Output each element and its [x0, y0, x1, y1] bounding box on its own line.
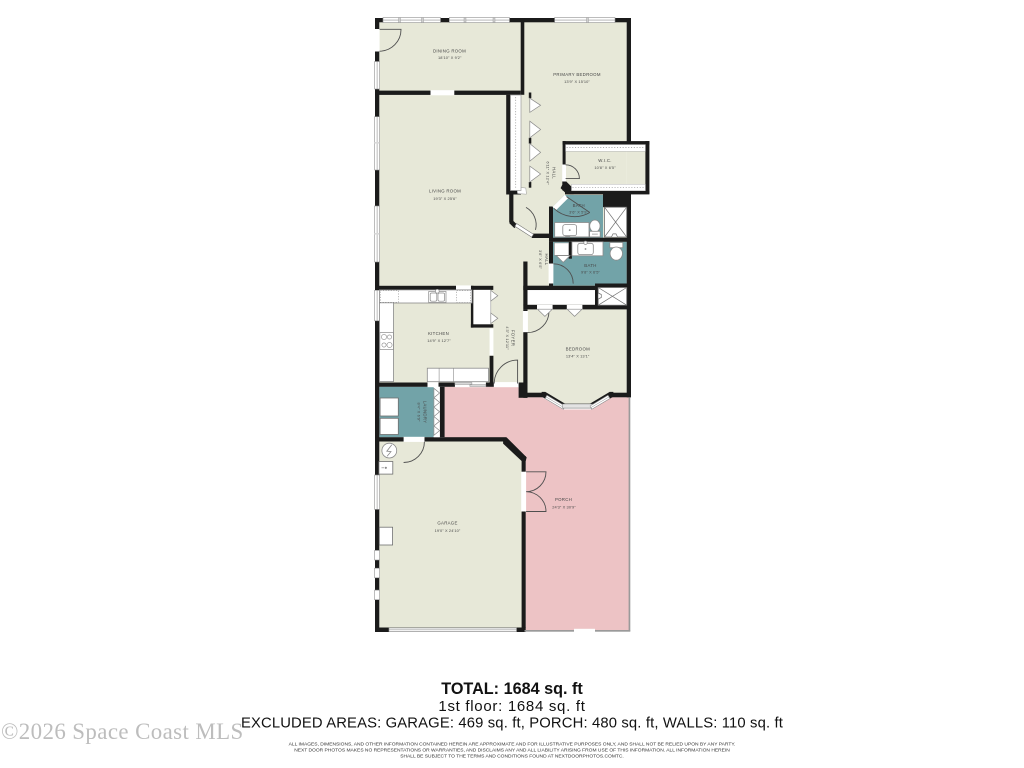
svg-text:KITCHEN: KITCHEN [428, 331, 449, 336]
svg-text:ALL IMAGES, DIMENSIONS, AND OT: ALL IMAGES, DIMENSIONS, AND OTHER INFORM… [289, 742, 736, 748]
svg-text:13'4" X 13'1": 13'4" X 13'1" [566, 353, 590, 358]
svg-text:8'4" X 6'9": 8'4" X 6'9" [416, 403, 421, 422]
svg-text:13'9" X 15'10": 13'9" X 15'10" [564, 79, 590, 84]
svg-text:4'3" X 12'11": 4'3" X 12'11" [505, 326, 510, 350]
svg-text:LAUNDRY: LAUNDRY [422, 401, 427, 424]
svg-text:PRIMARY BEDROOM: PRIMARY BEDROOM [553, 72, 601, 77]
svg-text:24'3" X 30'9": 24'3" X 30'9" [552, 505, 576, 510]
svg-text:10'8" X 6'5": 10'8" X 6'5" [594, 165, 616, 170]
svg-text:3'6" X 5'9": 3'6" X 5'9" [569, 210, 588, 215]
svg-text:BATH: BATH [584, 263, 596, 268]
svg-text:NEXT DOOR PHOTOS MAKES NO REPR: NEXT DOOR PHOTOS MAKES NO REPRESENTATION… [294, 748, 730, 754]
svg-text:HALL: HALL [552, 167, 557, 179]
svg-text:TOTAL: 1684 sq. ft: TOTAL: 1684 sq. ft [441, 680, 583, 698]
svg-text:PORCH: PORCH [555, 497, 572, 502]
svg-text:SHALL BE SUBJECT TO THE TERMS: SHALL BE SUBJECT TO THE TERMS AND CONDIT… [400, 754, 624, 760]
svg-text:9'8" X 6'5": 9'8" X 6'5" [581, 270, 600, 275]
svg-text:©2026 Space Coast MLS: ©2026 Space Coast MLS [1, 719, 244, 744]
svg-text:W.I.C.: W.I.C. [598, 158, 612, 163]
svg-text:19'0" X 24'10": 19'0" X 24'10" [435, 528, 461, 533]
svg-text:HALL: HALL [544, 254, 549, 266]
svg-text:GARAGE: GARAGE [437, 521, 457, 526]
svg-text:6'11" X 12'4": 6'11" X 12'4" [546, 161, 551, 185]
svg-text:DINING ROOM: DINING ROOM [433, 48, 466, 53]
svg-text:BEDROOM: BEDROOM [566, 347, 591, 352]
svg-text:LIVING ROOM: LIVING ROOM [429, 188, 461, 193]
svg-text:19'3" X 25'6": 19'3" X 25'6" [433, 196, 457, 201]
svg-text:1st floor: 1684 sq. ft: 1st floor: 1684 sq. ft [438, 698, 585, 715]
svg-text:3'8" X 6'5": 3'8" X 6'5" [538, 250, 543, 269]
svg-text:18'10" X 9'2": 18'10" X 9'2" [438, 55, 462, 60]
svg-text:14'9" X 12'7": 14'9" X 12'7" [427, 338, 451, 343]
svg-text:BATH: BATH [573, 203, 585, 208]
svg-text:EXCLUDED AREAS: GARAGE: 469 sq: EXCLUDED AREAS: GARAGE: 469 sq. ft, PORC… [241, 716, 783, 732]
